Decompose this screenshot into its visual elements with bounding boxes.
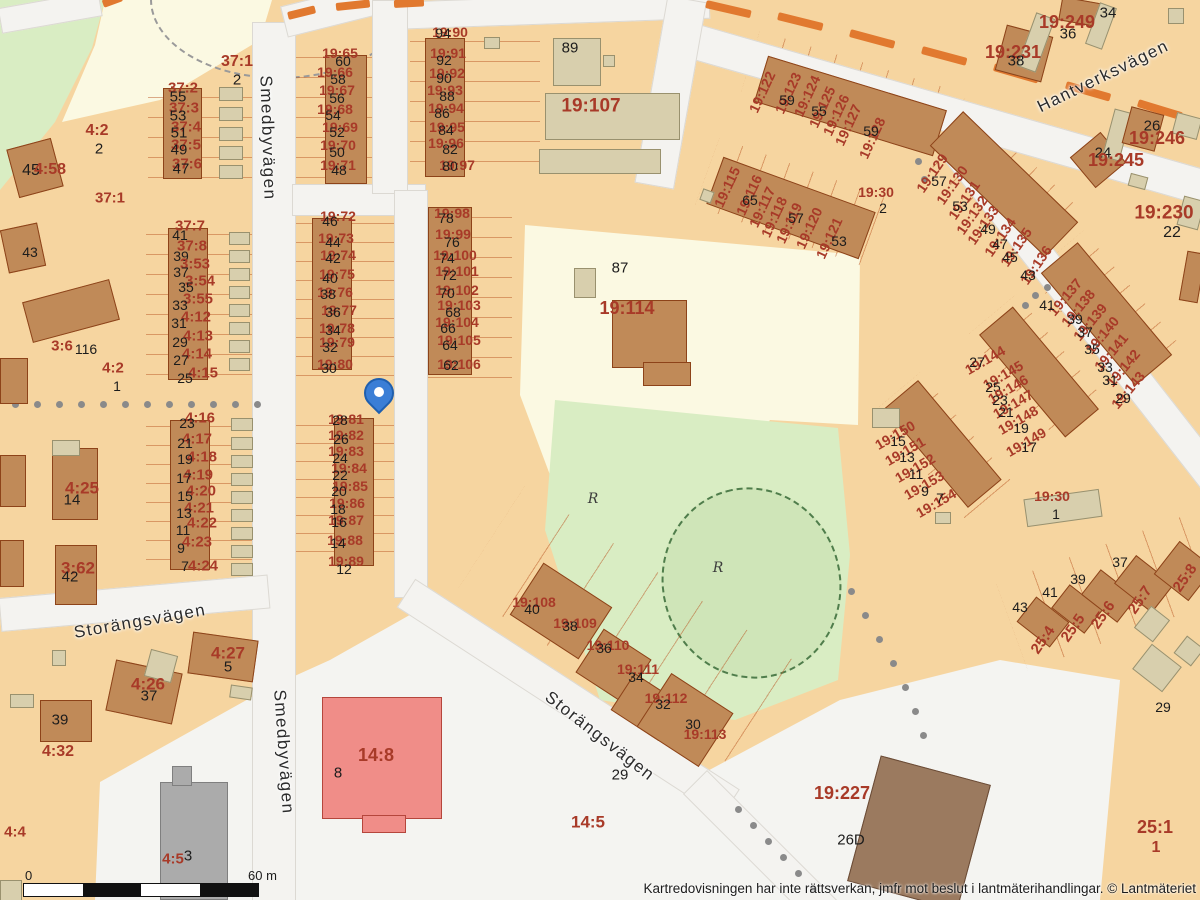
- path-dot: [210, 401, 217, 408]
- house-number-label: 40: [322, 271, 338, 285]
- parcel-label: 19:107: [561, 97, 620, 116]
- house-number-label: 14: [64, 493, 81, 508]
- parcel-label: 19:30: [858, 185, 894, 199]
- house-number-label: 32: [655, 697, 671, 711]
- house-number-label: 43: [22, 245, 38, 259]
- house-number-label: 38: [562, 619, 578, 633]
- house-number-label: 42: [62, 570, 79, 585]
- house-number-label: 86: [434, 106, 450, 120]
- road-vertical-mid: [394, 190, 428, 598]
- parcel-label: 14:8: [358, 746, 394, 764]
- building: [231, 418, 253, 431]
- house-number-label: 59: [863, 124, 879, 138]
- house-number-label: 25: [177, 371, 193, 385]
- building: [219, 127, 243, 141]
- house-number-label: 7: [181, 559, 189, 573]
- building: [172, 766, 192, 786]
- parcel-label: 1: [1152, 840, 1161, 856]
- house-number-label: 1: [1052, 507, 1060, 521]
- house-number-label: 32: [322, 340, 338, 354]
- building: [0, 358, 28, 404]
- house-number-label: 37: [141, 689, 158, 704]
- house-number-label: 36: [596, 641, 612, 655]
- house-number-label: 43: [1020, 268, 1036, 282]
- building: [229, 286, 250, 299]
- house-number-label: 39: [52, 713, 69, 728]
- house-number-label: 34: [628, 670, 644, 684]
- building: [52, 440, 80, 456]
- parcel-label: 25:1: [1137, 818, 1173, 836]
- path-dot: [56, 401, 63, 408]
- house-number-label: 55: [811, 104, 827, 118]
- building: [231, 473, 253, 486]
- parcel-label: 19:230: [1134, 204, 1193, 223]
- house-number-label: 116: [75, 342, 97, 356]
- path-dot: [122, 401, 129, 408]
- house-number-label: 39: [1070, 572, 1086, 586]
- house-number-label: 2: [879, 201, 887, 215]
- path-dot: [735, 806, 742, 813]
- path-dot: [890, 660, 897, 667]
- building: [229, 304, 250, 317]
- house-number-label: 27: [969, 355, 985, 369]
- house-number-label: 7: [936, 491, 944, 505]
- house-number-label: 42: [325, 251, 341, 265]
- parcel-label: 19:245: [1088, 151, 1144, 169]
- building: [231, 545, 253, 558]
- house-number-label: 47: [173, 162, 190, 177]
- house-number-label: 16: [331, 515, 347, 529]
- house-number-label: 29: [1115, 391, 1131, 405]
- parcel-label: 4:23: [182, 535, 212, 550]
- building: [219, 165, 243, 179]
- parcel-label: 19:114: [599, 299, 654, 317]
- building: [229, 358, 250, 371]
- scale-bar: [23, 883, 259, 897]
- map-symbol: R: [588, 492, 599, 506]
- path-dot: [902, 684, 909, 691]
- house-number-label: 78: [438, 211, 454, 225]
- house-number-label: 19: [177, 452, 193, 466]
- parcel-label: 3:6: [51, 339, 73, 354]
- house-number-label: 36: [1060, 27, 1077, 42]
- path-dot: [876, 636, 883, 643]
- house-number-label: 89: [562, 41, 579, 56]
- house-number-label: 29: [1155, 700, 1171, 714]
- house-number-label: 30: [685, 717, 701, 731]
- parcel-label: 37:1: [95, 191, 125, 206]
- path-dot: [912, 708, 919, 715]
- boundary-dash: [921, 46, 968, 66]
- parcel-label: 14:5: [571, 814, 605, 831]
- parcel-label: 4:5: [162, 852, 184, 867]
- parcel-label: 4:32: [42, 744, 74, 760]
- house-number-label: 17: [1021, 440, 1037, 454]
- path-dot: [848, 588, 855, 595]
- parcel-label: 4:22: [187, 516, 217, 531]
- building: [22, 279, 120, 343]
- house-number-label: 43: [1012, 600, 1028, 614]
- house-number-label: 30: [321, 361, 337, 375]
- building: [362, 815, 406, 833]
- path-dot: [100, 401, 107, 408]
- path-dot: [920, 732, 927, 739]
- house-number-label: 48: [331, 163, 347, 177]
- parcel-label: 4:2: [102, 361, 124, 376]
- building: [574, 268, 596, 298]
- building: [231, 527, 253, 540]
- building: [229, 268, 250, 281]
- building: [231, 509, 253, 522]
- house-number-label: 37: [1112, 555, 1128, 569]
- building: [219, 107, 243, 121]
- path-dot: [188, 401, 195, 408]
- house-number-label: 14: [330, 536, 346, 550]
- path-dot: [795, 870, 802, 877]
- house-number-label: 45: [1002, 250, 1018, 264]
- parcel-label: 4:4: [4, 825, 26, 840]
- building: [229, 685, 253, 701]
- building: [935, 512, 951, 524]
- house-number-label: 40: [524, 602, 540, 616]
- house-number-label: 62: [443, 358, 459, 372]
- parcel-label: 19:227: [814, 784, 870, 802]
- path-dot: [915, 158, 922, 165]
- building: [0, 540, 24, 587]
- house-number-label: 87: [612, 261, 629, 276]
- building: [1179, 251, 1200, 304]
- map-canvas[interactable]: 37:1237:25537:35337:45137:54937:6474:224…: [0, 0, 1200, 900]
- house-number-label: 5: [224, 660, 232, 675]
- boundary-dash: [777, 12, 824, 31]
- house-number-label: 53: [831, 234, 847, 248]
- house-number-label: 59: [779, 93, 795, 107]
- building: [219, 87, 243, 101]
- building: [1168, 8, 1184, 24]
- building: [484, 37, 500, 49]
- house-number-label: 8: [334, 766, 342, 781]
- building: [643, 362, 691, 386]
- building: [10, 694, 34, 708]
- building: [231, 455, 253, 468]
- house-number-label: 29: [612, 768, 629, 783]
- house-number-label: 9: [921, 484, 929, 498]
- house-number-label: 27: [173, 353, 189, 367]
- house-number-label: 38: [320, 287, 336, 301]
- parcel-label: 4:2: [85, 123, 108, 139]
- house-number-label: 64: [442, 338, 458, 352]
- boundary-dash: [849, 29, 896, 49]
- pin-hole-icon: [374, 387, 384, 397]
- house-number-label: 9: [177, 541, 185, 555]
- house-number-label: 41: [1042, 585, 1058, 599]
- parcel-label: 19:30: [1034, 489, 1070, 503]
- house-number-label: 23: [179, 416, 195, 430]
- building: [52, 650, 66, 666]
- road-vertical-top: [372, 0, 408, 194]
- house-number-label: 1: [113, 379, 121, 393]
- house-number-label: 2: [233, 73, 241, 88]
- house-number-label: 41: [1039, 298, 1055, 312]
- path-dot: [166, 401, 173, 408]
- building: [231, 491, 253, 504]
- path-dot: [750, 822, 757, 829]
- house-number-label: 82: [442, 142, 458, 156]
- path-dot: [144, 401, 151, 408]
- path-dot: [34, 401, 41, 408]
- parcel-label: 4:24: [188, 559, 218, 574]
- house-number-label: 31: [1102, 373, 1118, 387]
- house-number-label: 28: [332, 413, 348, 427]
- house-number-label: 80: [442, 159, 458, 173]
- house-number-label: 26D: [837, 833, 865, 848]
- house-number-label: 36: [325, 305, 341, 319]
- building: [1174, 636, 1200, 667]
- building: [0, 455, 26, 507]
- path-dot: [1022, 302, 1029, 309]
- building: [231, 437, 253, 450]
- path-dot: [254, 401, 261, 408]
- path-dot: [1032, 292, 1039, 299]
- path-dot: [78, 401, 85, 408]
- house-number-label: 46: [322, 214, 338, 228]
- parcel-label: 4:58: [34, 162, 66, 178]
- building: [229, 322, 250, 335]
- map-symbol: R: [713, 561, 724, 575]
- building: [229, 232, 250, 245]
- path-dot: [862, 612, 869, 619]
- house-number-label: 3: [184, 849, 192, 864]
- building: [0, 880, 22, 900]
- house-number-label: 34: [1100, 6, 1117, 21]
- path-dot: [780, 854, 787, 861]
- building: [539, 149, 661, 174]
- scale-start-label: 0: [25, 868, 32, 883]
- parcel-label: 19:246: [1129, 129, 1185, 147]
- building: [229, 250, 250, 263]
- house-number-label: 72: [441, 268, 457, 282]
- building: [231, 563, 253, 576]
- house-number-label: 12: [336, 562, 352, 576]
- street-name-label: Smedbyvägen: [257, 75, 278, 201]
- path-dot: [765, 838, 772, 845]
- scale-end-label: 60 m: [248, 868, 277, 883]
- building: [219, 146, 243, 160]
- building: [229, 340, 250, 353]
- map-attribution: Kartredovisningen har inte rättsverkan, …: [644, 881, 1196, 896]
- house-number-label: 94: [435, 26, 451, 40]
- parcel-label: 37:1: [221, 54, 253, 70]
- house-number-label: 38: [1008, 54, 1025, 69]
- house-number-label: 2: [95, 142, 103, 157]
- path-dot: [232, 401, 239, 408]
- boundary-dash: [705, 0, 752, 18]
- house-number-label: 22: [1163, 225, 1181, 241]
- location-pin-marker[interactable]: [362, 376, 396, 424]
- building: [603, 55, 615, 67]
